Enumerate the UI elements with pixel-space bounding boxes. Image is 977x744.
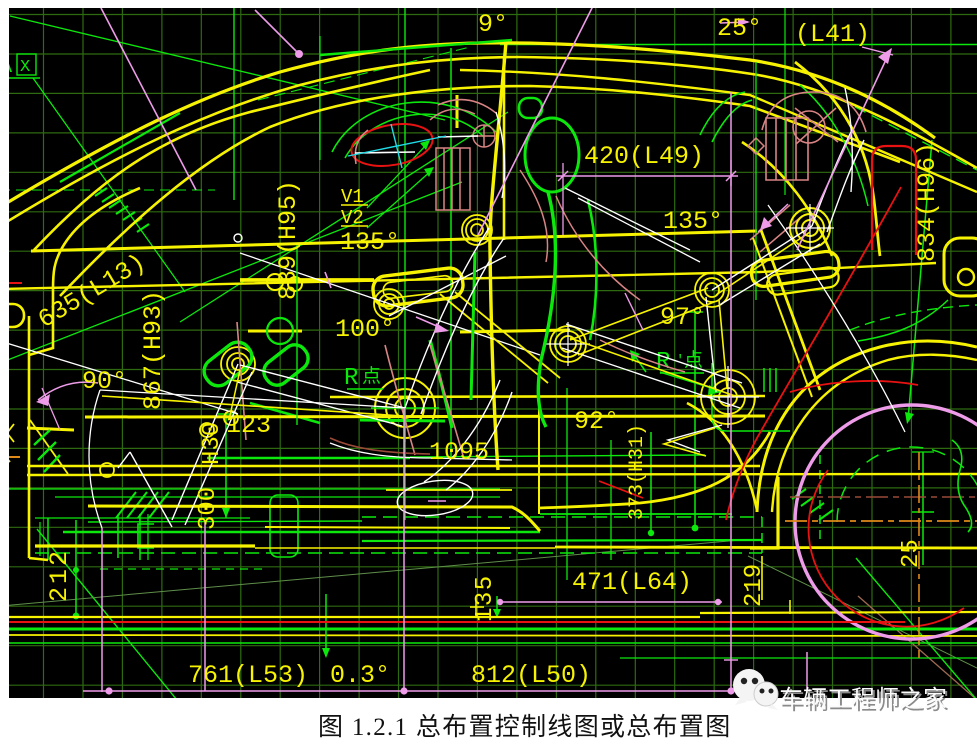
svg-text:420(L49): 420(L49) — [584, 142, 704, 171]
svg-text:25: 25 — [898, 539, 925, 568]
svg-text:97°: 97° — [660, 303, 705, 332]
svg-text:300: 300 — [195, 487, 222, 530]
svg-text:9°: 9° — [478, 10, 508, 39]
svg-text:H30: H30 — [199, 422, 226, 465]
svg-text:135: 135 — [472, 574, 499, 622]
svg-text:212: 212 — [45, 548, 74, 602]
svg-text:761(L53): 761(L53) — [188, 661, 308, 690]
svg-text:135°: 135° — [340, 228, 400, 257]
svg-text:(L41): (L41) — [795, 20, 870, 49]
svg-text:135°: 135° — [663, 207, 723, 236]
svg-text:90°: 90° — [82, 367, 127, 396]
svg-text:834(H96): 834(H96) — [913, 142, 942, 262]
svg-text:1095: 1095 — [429, 438, 489, 467]
svg-text:471(L64): 471(L64) — [572, 568, 692, 597]
svg-text:123: 123 — [226, 411, 271, 440]
svg-text:92°: 92° — [574, 407, 619, 436]
svg-text:219: 219 — [741, 564, 768, 607]
svg-text:867(H93): 867(H93) — [139, 290, 168, 410]
svg-text:0.3°: 0.3° — [330, 661, 390, 690]
svg-text:373(H31): 373(H31) — [626, 424, 649, 520]
svg-text:812(L50): 812(L50) — [471, 661, 591, 690]
svg-text:25°: 25° — [717, 14, 762, 43]
svg-text:100°: 100° — [335, 315, 395, 344]
svg-text:点: 点 — [362, 365, 381, 388]
svg-text:图 1.2.1 总布置控制线图或总布置图: 图 1.2.1 总布置控制线图或总布置图 — [318, 713, 732, 741]
svg-text:R: R — [344, 365, 358, 392]
svg-text:车辆工程师之家: 车辆工程师之家 — [779, 686, 947, 713]
svg-text:X: X — [20, 58, 30, 77]
svg-text:889(H95): 889(H95) — [274, 180, 303, 300]
